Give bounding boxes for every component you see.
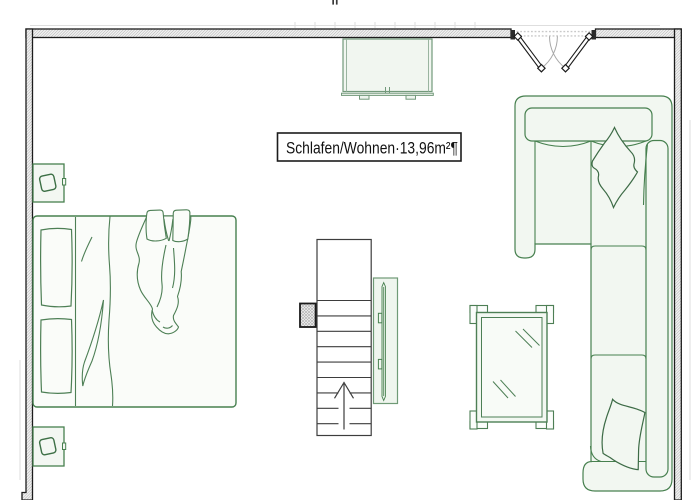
svg-text:Schlafen/Wohnen·13,96m²¶: Schlafen/Wohnen·13,96m²¶ — [286, 139, 458, 158]
